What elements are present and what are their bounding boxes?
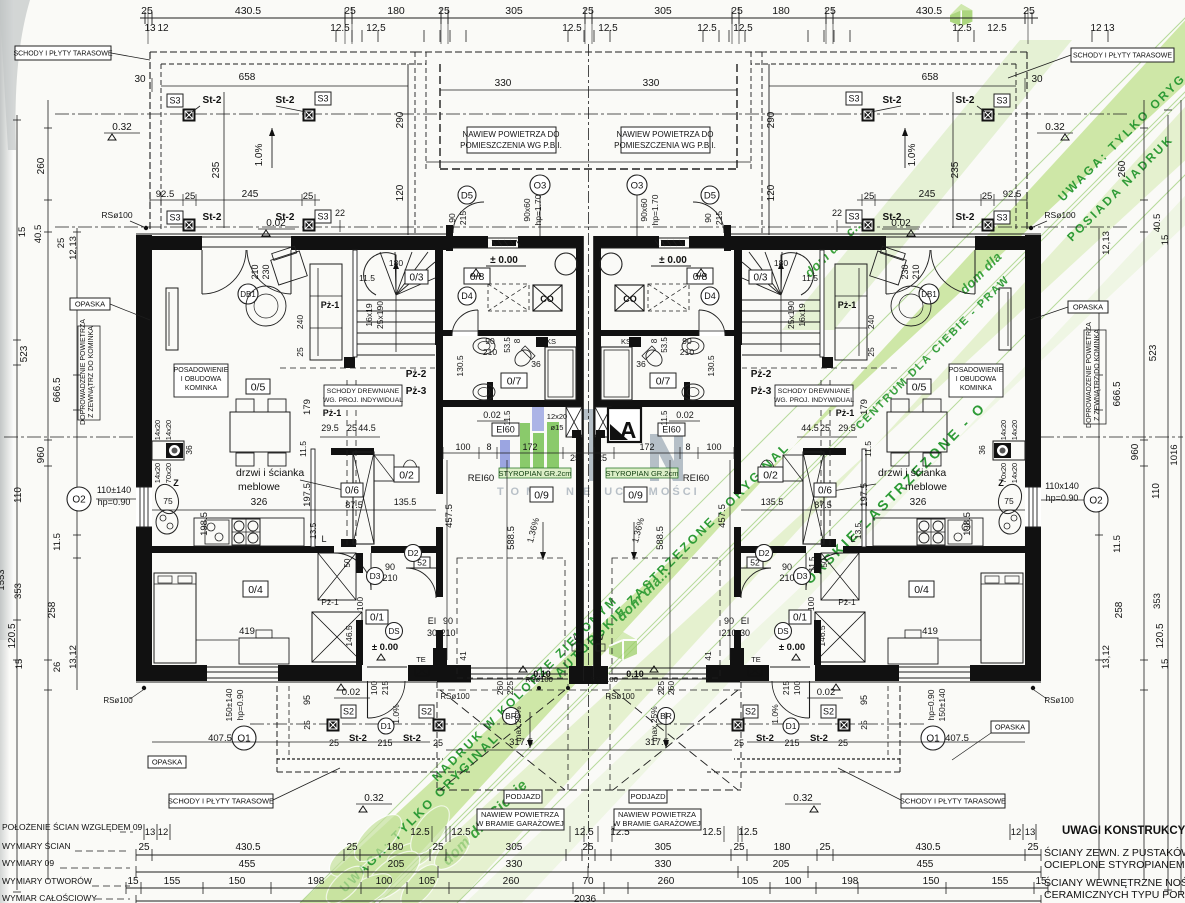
svg-text:260: 260 [495, 681, 505, 695]
svg-text:11.5: 11.5 [503, 410, 512, 426]
svg-text:A: A [620, 417, 637, 443]
svg-text:430.5: 430.5 [915, 842, 940, 853]
svg-text:197.5: 197.5 [302, 483, 313, 507]
svg-text:PODJAZD: PODJAZD [505, 792, 541, 801]
svg-text:15: 15 [127, 876, 139, 887]
svg-text:W: W [573, 633, 581, 642]
svg-text:S3: S3 [996, 96, 1007, 106]
svg-text:75: 75 [1004, 496, 1014, 506]
svg-text:25: 25 [597, 453, 607, 463]
svg-text:215: 215 [784, 738, 799, 748]
svg-text:210: 210 [483, 347, 497, 357]
svg-text:Pż-1: Pż-1 [836, 408, 855, 418]
svg-text:12.5: 12.5 [952, 23, 972, 34]
svg-text:0.02: 0.02 [676, 410, 694, 420]
svg-text:OPASKA: OPASKA [75, 300, 105, 309]
svg-text:CO: CO [623, 294, 637, 304]
svg-text:I OBUDOWA: I OBUDOWA [181, 376, 222, 383]
svg-text:DS: DS [777, 627, 788, 636]
svg-text:197.5: 197.5 [859, 483, 870, 507]
svg-text:DOPROWADZENIE POWIETRZA: DOPROWADZENIE POWIETRZA [1086, 322, 1093, 428]
svg-text:S2: S2 [343, 707, 354, 717]
svg-text:25: 25 [731, 5, 743, 17]
svg-text:St-2: St-2 [883, 95, 902, 106]
svg-text:8: 8 [513, 338, 522, 343]
svg-text:40.5: 40.5 [1152, 214, 1163, 233]
svg-text:25: 25 [570, 453, 580, 463]
svg-text:455: 455 [917, 859, 934, 870]
svg-text:150±140: 150±140 [224, 688, 234, 721]
svg-text:drzwi i ścianka: drzwi i ścianka [236, 467, 304, 479]
svg-text:25: 25 [302, 720, 312, 730]
svg-text:53.5: 53.5 [660, 337, 669, 353]
svg-text:260: 260 [36, 157, 47, 174]
svg-text:95: 95 [302, 695, 312, 705]
svg-text:110: 110 [1151, 483, 1162, 499]
svg-text:Pż-1: Pż-1 [321, 300, 340, 310]
svg-text:666.5: 666.5 [52, 377, 63, 402]
svg-text:235: 235 [950, 161, 961, 178]
svg-text:ø15: ø15 [551, 423, 564, 432]
svg-text:205: 205 [773, 859, 790, 870]
svg-text:25: 25 [866, 347, 876, 357]
svg-text:0.10: 0.10 [626, 669, 644, 679]
svg-text:30: 30 [427, 628, 437, 638]
svg-text:658: 658 [922, 72, 939, 83]
svg-text:OPASKA: OPASKA [1073, 303, 1103, 312]
svg-text:179: 179 [859, 399, 870, 415]
svg-text:WG. PROJ. INDYWIDUAL: WG. PROJ. INDYWIDUAL [323, 397, 403, 404]
svg-text:KOMINKA: KOMINKA [185, 385, 218, 392]
svg-text:OPASKA: OPASKA [152, 758, 182, 767]
svg-text:305: 305 [655, 842, 672, 853]
svg-text:353: 353 [13, 583, 24, 599]
svg-text:0/3: 0/3 [410, 273, 424, 284]
svg-text:0.32: 0.32 [364, 793, 384, 804]
svg-text:D2: D2 [408, 548, 419, 558]
svg-text:S2: S2 [823, 707, 834, 717]
svg-text:105: 105 [742, 876, 759, 887]
svg-text:179: 179 [302, 399, 313, 415]
svg-text:13,12: 13,12 [1101, 645, 1112, 669]
svg-text:0.02: 0.02 [266, 218, 286, 229]
svg-text:12.5: 12.5 [733, 23, 753, 34]
svg-text:135.5: 135.5 [761, 497, 784, 507]
svg-text:25: 25 [185, 191, 196, 202]
svg-text:25: 25 [138, 842, 150, 853]
svg-text:12: 12 [1011, 827, 1022, 838]
svg-text:260: 260 [666, 681, 676, 695]
svg-text:100: 100 [785, 876, 802, 887]
svg-text:Pż-3: Pż-3 [751, 386, 772, 397]
svg-text:25: 25 [982, 191, 993, 202]
svg-text:25x190: 25x190 [375, 301, 385, 329]
svg-text:419: 419 [922, 626, 938, 637]
svg-text:CERAMICZNYCH TYPU POROTH: CERAMICZNYCH TYPU POROTH [1044, 889, 1185, 901]
svg-text:230: 230 [261, 264, 271, 279]
svg-text:CO: CO [540, 294, 554, 304]
svg-text:St-2: St-2 [956, 95, 975, 106]
svg-text:13: 13 [145, 827, 156, 838]
svg-text:D4: D4 [704, 291, 716, 301]
svg-text:1.0%: 1.0% [391, 704, 401, 724]
svg-text:RSø100: RSø100 [101, 210, 132, 220]
svg-text:11.5: 11.5 [802, 273, 818, 283]
svg-text:588.5: 588.5 [506, 526, 517, 550]
svg-text:NAWIEW POWIETRZA: NAWIEW POWIETRZA [481, 810, 559, 819]
svg-text:330: 330 [495, 78, 512, 89]
svg-text:8: 8 [486, 442, 491, 452]
svg-text:36: 36 [977, 445, 987, 455]
svg-text:317.5: 317.5 [509, 737, 533, 748]
svg-text:D5: D5 [461, 190, 473, 201]
svg-text:Pż-1: Pż-1 [838, 597, 856, 607]
svg-text:2036: 2036 [574, 894, 597, 903]
svg-text:180: 180 [772, 5, 790, 17]
svg-text:960: 960 [36, 446, 47, 463]
svg-text:12.5: 12.5 [697, 23, 717, 34]
svg-text:210: 210 [382, 573, 397, 583]
svg-text:180: 180 [387, 5, 405, 17]
svg-text:70: 70 [582, 876, 594, 887]
svg-text:36: 36 [184, 445, 194, 455]
svg-text:D4: D4 [461, 291, 473, 301]
svg-text:29.5: 29.5 [321, 423, 339, 433]
svg-text:44.5: 44.5 [358, 423, 376, 433]
svg-text:12: 12 [158, 827, 169, 838]
svg-text:meblowe: meblowe [905, 481, 947, 493]
svg-text:90: 90 [385, 562, 395, 572]
svg-text:S3: S3 [848, 94, 859, 104]
svg-text:25: 25 [432, 842, 444, 853]
svg-text:25: 25 [346, 842, 358, 853]
svg-text:180: 180 [387, 842, 404, 853]
svg-text:TE: TE [416, 655, 426, 664]
svg-text:25: 25 [303, 191, 314, 202]
svg-text:100: 100 [455, 442, 470, 452]
svg-text:SCHODY DREWNIANE: SCHODY DREWNIANE [778, 388, 851, 395]
svg-text:330: 330 [655, 859, 672, 870]
svg-text:326: 326 [251, 497, 268, 508]
svg-text:240: 240 [295, 315, 305, 329]
svg-text:215: 215 [781, 681, 791, 695]
svg-text:NAWIEW POWIETRZA DO: NAWIEW POWIETRZA DO [616, 130, 713, 139]
svg-text:W: W [596, 633, 604, 642]
svg-text:12.5: 12.5 [562, 23, 582, 34]
svg-text:135.5: 135.5 [394, 497, 417, 507]
svg-text:POMIESZCZENIA WG P.B.I.: POMIESZCZENIA WG P.B.I. [460, 141, 562, 150]
svg-text:Pż-1: Pż-1 [323, 408, 342, 418]
svg-text:12x20: 12x20 [547, 412, 567, 421]
svg-text:12.5: 12.5 [738, 827, 758, 838]
svg-text:hp=0.90: hp=0.90 [926, 689, 936, 720]
svg-text:150: 150 [229, 876, 246, 887]
svg-text:0/8: 0/8 [693, 271, 708, 283]
svg-text:419: 419 [239, 626, 255, 637]
svg-text:WYMIAR CAŁOŚCIOWY: WYMIAR CAŁOŚCIOWY [2, 892, 97, 903]
svg-text:12,13: 12,13 [1101, 231, 1112, 255]
svg-text:O1: O1 [926, 734, 940, 745]
svg-text:0/4: 0/4 [914, 584, 929, 596]
svg-text:100: 100 [376, 876, 393, 887]
svg-text:L: L [321, 534, 326, 544]
svg-text:330: 330 [643, 78, 660, 89]
svg-text:0/1: 0/1 [370, 613, 384, 624]
svg-text:RSø100: RSø100 [590, 675, 618, 684]
svg-text:430.5: 430.5 [916, 5, 942, 17]
svg-text:D3: D3 [370, 571, 381, 581]
svg-text:1.0%: 1.0% [770, 704, 780, 724]
svg-text:POSADOWIENIE: POSADOWIENIE [949, 367, 1004, 374]
svg-text:D2: D2 [759, 548, 770, 558]
svg-text:16x19: 16x19 [797, 303, 807, 326]
svg-text:hp=0.90: hp=0.90 [235, 689, 245, 720]
svg-text:326: 326 [910, 497, 927, 508]
svg-text:0/7: 0/7 [507, 375, 522, 387]
svg-text:155: 155 [164, 876, 181, 887]
svg-text:26: 26 [52, 662, 63, 673]
svg-text:S3: S3 [317, 212, 328, 222]
svg-text:25x190: 25x190 [786, 301, 796, 329]
svg-text:1.0%: 1.0% [254, 143, 265, 166]
svg-text:100: 100 [706, 442, 721, 452]
svg-text:172: 172 [639, 442, 654, 452]
svg-text:25: 25 [344, 5, 356, 17]
svg-text:drzwi i ścianka: drzwi i ścianka [878, 467, 946, 479]
svg-text:1016: 1016 [1169, 444, 1180, 465]
svg-text:Z ZEWNĄTRZ DO KOMINKA: Z ZEWNĄTRZ DO KOMINKA [1094, 329, 1101, 421]
svg-text:198: 198 [308, 876, 325, 887]
svg-text:198.5: 198.5 [199, 512, 210, 536]
svg-text:S3: S3 [317, 94, 328, 104]
svg-text:OPASKA: OPASKA [995, 723, 1025, 732]
svg-text:210: 210 [440, 628, 455, 638]
svg-text:225: 225 [505, 681, 515, 695]
svg-text:105: 105 [419, 876, 436, 887]
svg-text:EI: EI [428, 616, 437, 626]
svg-text:457.5: 457.5 [717, 504, 728, 528]
svg-text:14x20: 14x20 [153, 463, 162, 483]
svg-text:11.5: 11.5 [1112, 535, 1123, 553]
svg-text:430.5: 430.5 [235, 842, 260, 853]
svg-text:EI: EI [741, 616, 750, 626]
svg-text:90: 90 [682, 336, 692, 346]
svg-text:0/1: 0/1 [793, 613, 807, 624]
svg-text:O2: O2 [1089, 496, 1103, 507]
svg-text:0.02: 0.02 [891, 218, 911, 229]
svg-text:29.5: 29.5 [838, 423, 856, 433]
svg-text:Pż-2: Pż-2 [751, 369, 772, 380]
svg-text:25: 25 [141, 5, 153, 17]
svg-text:ŚCIANY ZEWN. Z PUSTAKÓW C: ŚCIANY ZEWN. Z PUSTAKÓW C [1044, 846, 1185, 859]
svg-text:0.02: 0.02 [483, 410, 501, 420]
svg-text:92.5: 92.5 [156, 189, 175, 200]
svg-text:25: 25 [56, 238, 67, 249]
svg-text:14x20: 14x20 [1010, 463, 1019, 483]
svg-text:90: 90 [485, 336, 495, 346]
svg-text:hp=0.90: hp=0.90 [98, 497, 131, 507]
svg-text:245: 245 [919, 189, 936, 200]
svg-text:120.5: 120.5 [1155, 623, 1166, 648]
svg-text:W BRAMIE GARAŻOWEJ: W BRAMIE GARAŻOWEJ [476, 819, 564, 828]
svg-text:KS: KS [546, 337, 556, 346]
svg-text:STYROPIAN GR.2cm: STYROPIAN GR.2cm [499, 469, 572, 478]
svg-text:25: 25 [864, 191, 875, 202]
svg-text:0/8: 0/8 [470, 271, 485, 283]
svg-text:St-2: St-2 [203, 212, 222, 223]
svg-text:120: 120 [395, 184, 406, 201]
svg-text:110: 110 [13, 487, 24, 503]
svg-text:POŁOŻENIE ŚCIAN WZGLĘDEM 09: POŁOŻENIE ŚCIAN WZGLĘDEM 09 [2, 821, 143, 832]
svg-text:41: 41 [458, 651, 468, 661]
svg-text:25: 25 [347, 423, 357, 433]
svg-text:11.5: 11.5 [808, 556, 817, 572]
svg-text:12.5: 12.5 [410, 827, 430, 838]
svg-text:SCHODY I PŁYTY TARASOWE: SCHODY I PŁYTY TARASOWE [1073, 53, 1172, 60]
svg-text:DOPROWADZENIE POWIETRZA: DOPROWADZENIE POWIETRZA [80, 319, 87, 425]
svg-text:180: 180 [389, 258, 403, 268]
svg-text:O3: O3 [631, 180, 644, 191]
svg-text:0/6: 0/6 [345, 486, 359, 497]
svg-text:25: 25 [733, 842, 745, 853]
svg-text:ŚCIANY WEWNĘTRZNE NOŚNE: ŚCIANY WEWNĘTRZNE NOŚNE [1044, 876, 1185, 889]
svg-text:11.5: 11.5 [52, 533, 63, 551]
svg-text:S3: S3 [848, 212, 859, 222]
svg-text:100: 100 [355, 597, 365, 611]
svg-text:0/2: 0/2 [399, 469, 414, 481]
svg-text:172: 172 [522, 442, 537, 452]
svg-text:353: 353 [1152, 593, 1163, 609]
svg-text:70x20: 70x20 [164, 463, 173, 483]
svg-text:11.5: 11.5 [359, 273, 375, 283]
svg-text:Pż-2: Pż-2 [406, 369, 427, 380]
svg-text:14x20: 14x20 [999, 420, 1008, 440]
svg-text:25: 25 [1027, 842, 1039, 853]
svg-text:S3: S3 [169, 213, 180, 223]
svg-text:15: 15 [1160, 235, 1171, 246]
svg-text:0.32: 0.32 [793, 793, 813, 804]
svg-text:UWAGI KONSTRUKCYJNE: UWAGI KONSTRUKCYJNE [1062, 825, 1185, 837]
svg-text:330: 330 [506, 859, 523, 870]
svg-text:290: 290 [395, 111, 406, 128]
svg-text:RSø100: RSø100 [440, 692, 470, 701]
svg-text:215: 215 [380, 681, 390, 695]
svg-text:25: 25 [819, 842, 831, 853]
svg-text:S3: S3 [169, 96, 180, 106]
svg-text:12.5: 12.5 [451, 827, 471, 838]
svg-text:13.5: 13.5 [853, 522, 863, 539]
svg-text:455: 455 [239, 859, 256, 870]
svg-text:13: 13 [144, 23, 156, 34]
svg-text:0/5: 0/5 [912, 381, 927, 393]
svg-text:215: 215 [458, 211, 468, 225]
svg-text:258: 258 [1114, 601, 1125, 618]
svg-text:130.5: 130.5 [706, 355, 716, 377]
svg-text:Pż-1: Pż-1 [838, 300, 857, 310]
svg-text:POSADOWIENIE: POSADOWIENIE [174, 367, 229, 374]
svg-text:KS: KS [621, 337, 631, 346]
svg-text:hp=1.70: hp=1.70 [533, 194, 543, 225]
svg-text:87.5: 87.5 [345, 500, 363, 510]
svg-text:210: 210 [250, 264, 260, 279]
svg-text:0.32: 0.32 [112, 122, 132, 133]
svg-text:150: 150 [923, 876, 940, 887]
svg-text:0/2: 0/2 [763, 469, 778, 481]
svg-text:25: 25 [820, 423, 830, 433]
svg-text:NAWIEW POWIETRZA DO: NAWIEW POWIETRZA DO [462, 130, 559, 139]
svg-text:25: 25 [582, 842, 594, 853]
svg-text:44.5: 44.5 [801, 423, 819, 433]
svg-text:14x20: 14x20 [1010, 420, 1019, 440]
svg-text:305: 305 [654, 5, 672, 17]
svg-text:SCHODY I PŁYTY TARASOWE: SCHODY I PŁYTY TARASOWE [13, 51, 112, 58]
svg-text:155: 155 [992, 876, 1009, 887]
svg-text:25: 25 [1023, 5, 1035, 17]
svg-text:RSø100: RSø100 [525, 675, 553, 684]
svg-text:12: 12 [1090, 23, 1102, 34]
svg-text:St-2: St-2 [203, 95, 222, 106]
svg-text:11.5: 11.5 [660, 410, 669, 426]
svg-text:12,13: 12,13 [68, 236, 79, 260]
svg-text:12: 12 [157, 23, 169, 34]
svg-text:25: 25 [838, 738, 848, 748]
svg-text:WYMIARY OTWORÓW: WYMIARY OTWORÓW [2, 876, 92, 886]
svg-text:0/3: 0/3 [754, 273, 768, 284]
svg-text:REI60: REI60 [683, 473, 709, 484]
svg-text:Pż-3: Pż-3 [406, 386, 427, 397]
svg-text:666.5: 666.5 [1112, 381, 1123, 406]
svg-text:260: 260 [503, 876, 520, 887]
svg-text:12.5: 12.5 [330, 23, 350, 34]
svg-text:150±140: 150±140 [937, 688, 947, 721]
svg-text:305: 305 [505, 5, 523, 17]
svg-text:305: 305 [506, 842, 523, 853]
svg-text:100: 100 [792, 681, 802, 695]
svg-text:0/9: 0/9 [534, 489, 549, 501]
svg-text:KOMINKA: KOMINKA [960, 385, 993, 392]
svg-text:RSø100: RSø100 [1044, 696, 1074, 705]
svg-text:225: 225 [656, 681, 666, 695]
svg-text:22: 22 [335, 208, 345, 218]
svg-text:15: 15 [17, 227, 28, 238]
svg-text:0/4: 0/4 [248, 584, 263, 596]
svg-text:Z: Z [173, 478, 179, 488]
svg-text:25: 25 [329, 738, 339, 748]
svg-text:180: 180 [774, 258, 788, 268]
svg-text:25: 25 [734, 738, 744, 748]
svg-text:11.5: 11.5 [863, 441, 873, 457]
svg-text:RSø100: RSø100 [605, 692, 635, 701]
svg-text:110±140: 110±140 [97, 485, 131, 495]
svg-text:± 0.00: ± 0.00 [779, 642, 805, 653]
svg-text:RSø100: RSø100 [1044, 210, 1075, 220]
svg-text:180: 180 [774, 842, 791, 853]
svg-text:PODJAZD: PODJAZD [630, 792, 666, 801]
svg-text:16x19: 16x19 [364, 303, 374, 326]
svg-text:15: 15 [14, 659, 25, 670]
svg-text:258: 258 [47, 601, 58, 618]
svg-text:90x60: 90x60 [522, 198, 532, 221]
svg-text:0/7: 0/7 [656, 375, 671, 387]
svg-text:30: 30 [740, 628, 750, 638]
svg-text:198.5: 198.5 [962, 512, 973, 536]
svg-text:TE: TE [751, 655, 761, 664]
svg-text:120.5: 120.5 [7, 623, 18, 648]
svg-text:430.5: 430.5 [235, 5, 261, 17]
svg-text:36: 36 [531, 359, 541, 369]
svg-text:NAWIEW POWIETRZA: NAWIEW POWIETRZA [618, 810, 696, 819]
svg-text:13,12: 13,12 [68, 645, 79, 669]
